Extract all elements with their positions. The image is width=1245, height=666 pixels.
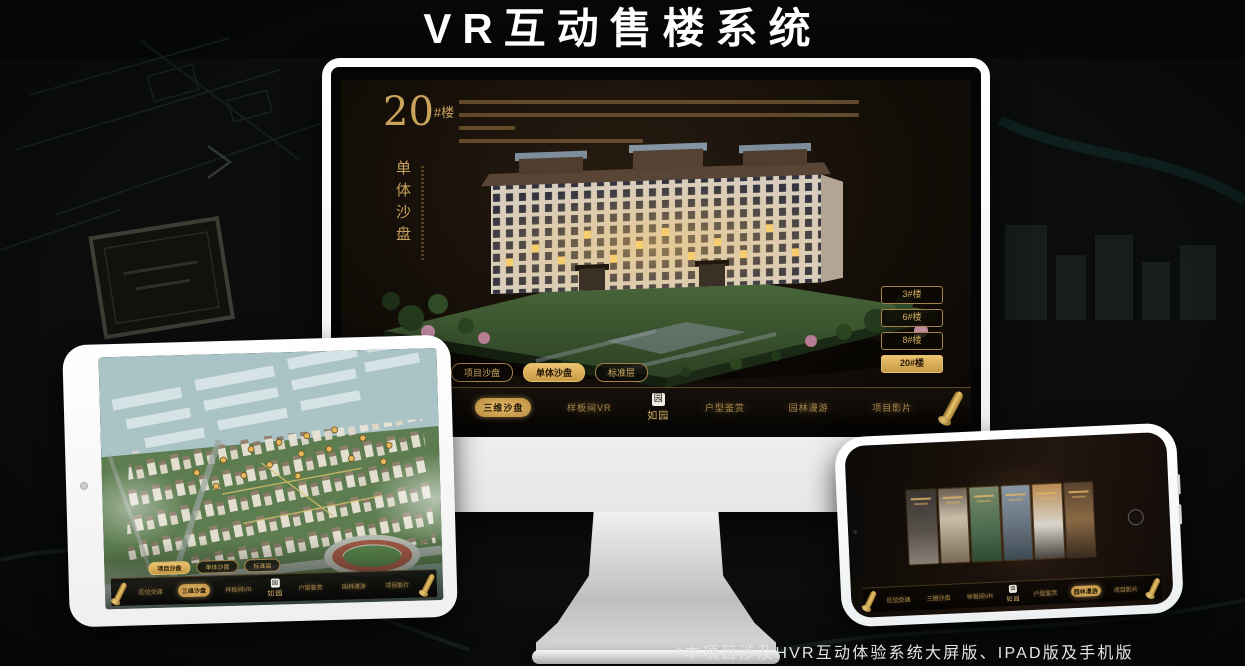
nav-item-unit-plans[interactable]: 户型鉴赏 [1030, 586, 1060, 598]
floor-button-8[interactable]: 8#楼 [881, 332, 943, 350]
scroll-left-icon[interactable] [112, 581, 127, 603]
nav-item-location[interactable]: 区位交通 [883, 593, 913, 605]
phone-notch [846, 489, 865, 576]
tablet-frame: 项目沙盘 单体沙盘 标准层 区位交通 三维沙盘 样板间VR 园 如园 户型鉴赏 … [62, 335, 458, 628]
tablet-screen: 项目沙盘 单体沙盘 标准层 区位交通 三维沙盘 样板间VR 园 如园 户型鉴赏 … [98, 348, 443, 609]
building-number-unit: #楼 [434, 105, 454, 120]
nav-item-3d-sandtable[interactable]: 三维沙盘 [475, 398, 531, 417]
logo-text: 如园 [647, 407, 669, 422]
smartphone-device: 区位交通 三维沙盘 样板间VR 园 如园 户型鉴赏 园林漫游 项目影片 [834, 422, 1184, 627]
tab-single-sandtable[interactable]: 单体沙盘 [196, 560, 238, 574]
gyro-indicator-icon [1127, 509, 1144, 526]
description-text-line [459, 100, 859, 104]
tab-project-sandtable[interactable]: 项目沙盘 [451, 363, 513, 382]
nav-item-project-film[interactable]: 项目影片 [381, 578, 413, 592]
nav-item-3d-sandtable[interactable]: 三维沙盘 [923, 591, 953, 603]
tab-standard-floor[interactable]: 标准层 [595, 363, 648, 382]
footnote-text: *本项目涉及HVR互动体验系统大屏版、IPAD版及手机版 [676, 639, 1134, 663]
project-logo: 园 如园 [647, 393, 669, 422]
nav-item-garden-roam[interactable]: 园林漫游 [781, 398, 837, 417]
floor-button-group: 3#楼 6#楼 8#楼 20#楼 [881, 286, 943, 373]
tab-standard-floor[interactable]: 标准层 [244, 558, 280, 572]
floor-button-3[interactable]: 3#楼 [881, 286, 943, 304]
nav-item-project-film[interactable]: 项目影片 [864, 398, 920, 417]
nav-item-3d-sandtable[interactable]: 三维沙盘 [178, 583, 210, 597]
tablet-device: 项目沙盘 单体沙盘 标准层 区位交通 三维沙盘 样板间VR 园 如园 户型鉴赏 … [62, 335, 458, 628]
logo-seal-icon: 园 [270, 578, 279, 587]
floor-button-20[interactable]: 20#楼 [881, 355, 943, 373]
scene-card-autumn[interactable] [1032, 484, 1064, 559]
scroll-right-icon[interactable] [420, 573, 435, 595]
scene-card-shelves[interactable] [1064, 482, 1096, 557]
page-title: VR互动售楼系统 [0, 0, 1245, 58]
scroll-right-icon[interactable] [941, 390, 965, 424]
scene-card-interior-dark[interactable] [906, 489, 938, 564]
logo-seal-icon: 园 [652, 393, 665, 406]
sandtable-tabs: 项目沙盘 单体沙盘 标准层 [451, 363, 648, 382]
scene-card-garden[interactable] [969, 486, 1001, 561]
scroll-right-icon[interactable] [1147, 577, 1161, 598]
description-text-line [459, 113, 859, 117]
tab-single-sandtable[interactable]: 单体沙盘 [523, 363, 585, 382]
nav-item-showroom-vr[interactable]: 样板间VR [964, 589, 997, 601]
project-logo: 园 如园 [267, 578, 284, 598]
scene-card-building[interactable] [1001, 485, 1033, 560]
logo-seal-icon: 园 [1009, 585, 1017, 593]
phone-screen: 区位交通 三维沙盘 样板间VR 园 如园 户型鉴赏 园林漫游 项目影片 [844, 432, 1173, 618]
tab-project-sandtable[interactable]: 项目沙盘 [148, 561, 190, 575]
nav-item-location[interactable]: 区位交通 [134, 585, 166, 599]
logo-text: 如园 [1006, 594, 1020, 604]
tablet-camera-icon [80, 482, 88, 490]
logo-text: 如园 [267, 588, 283, 598]
nav-item-project-film[interactable]: 项目影片 [1111, 583, 1141, 595]
scene-card-interior-bright[interactable] [938, 488, 970, 563]
project-logo: 园 如园 [1006, 585, 1021, 604]
phone-frame: 区位交通 三维沙盘 样板间VR 园 如园 户型鉴赏 园林漫游 项目影片 [834, 422, 1184, 627]
nav-item-garden-roam[interactable]: 园林漫游 [1070, 584, 1100, 596]
nav-item-unit-plans[interactable]: 户型鉴赏 [697, 398, 753, 417]
scroll-left-icon[interactable] [863, 590, 877, 611]
nav-item-unit-plans[interactable]: 户型鉴赏 [294, 580, 326, 594]
scene-carousel [906, 482, 1095, 564]
main-nav-bar: 区位交通 三维沙盘 样板间VR 园 如园 户型鉴赏 园林漫游 项目影片 [863, 574, 1162, 612]
phone-camera-icon [853, 530, 857, 534]
floor-button-6[interactable]: 6#楼 [881, 309, 943, 327]
nav-item-garden-roam[interactable]: 园林漫游 [338, 579, 370, 593]
nav-item-showroom-vr[interactable]: 样板间VR [221, 582, 256, 596]
nav-item-showroom-vr[interactable]: 样板间VR [559, 398, 620, 417]
